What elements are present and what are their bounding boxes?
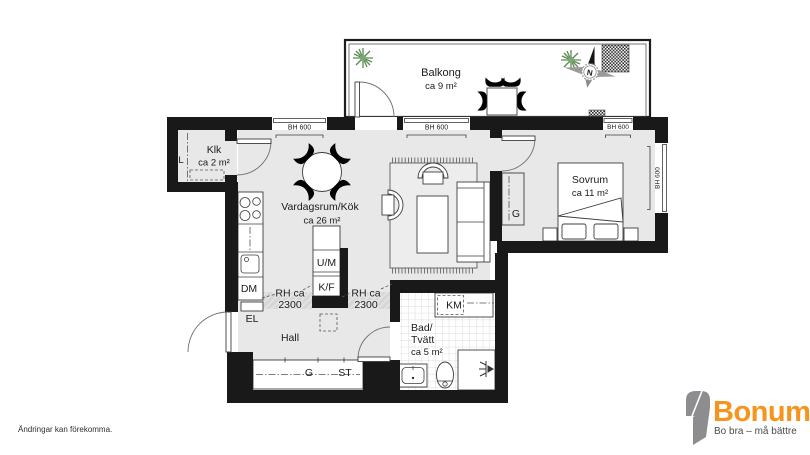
balcony-label: Balkong [421, 67, 461, 79]
balcony-drain-grate [602, 45, 629, 72]
balcony-area: ca 9 m² [425, 81, 457, 92]
washing-machine [435, 293, 493, 317]
bonum-logo-icon [686, 391, 710, 445]
floor-plan: Balkong ca 9 m² N [0, 0, 810, 455]
balcony: Balkong ca 9 m² [345, 40, 650, 117]
bedroom-wardrobe-label: G [512, 208, 520, 220]
ceiling-height-label-1b: 2300 [278, 299, 302, 311]
nightstand [624, 228, 638, 241]
dishwasher-label: DM [241, 283, 257, 295]
hall-label: Hall [281, 332, 299, 344]
window-height-label: BH 600 [655, 167, 662, 189]
ceiling-height-label-2a: RH ca [351, 288, 380, 300]
klk-area: ca 2 m² [198, 158, 230, 169]
hall-wardrobe-label: G [305, 367, 313, 379]
window: BH 600 [647, 143, 668, 213]
electrical-label: EL [246, 313, 259, 325]
entry-door [188, 312, 238, 352]
bath-label-1: Bad/ [411, 322, 433, 334]
living-room-furniture [382, 160, 490, 271]
living-kitchen-area: ca 26 m² [304, 216, 341, 227]
bath-label-2: Tvätt [411, 334, 434, 346]
toilet [437, 362, 454, 388]
window-height-label: BH 600 [425, 125, 448, 132]
bathroom-sink [399, 364, 427, 387]
ceiling-height-label-1a: RH ca [275, 288, 304, 300]
fridge-freezer-label: K/F [318, 282, 334, 294]
plant-icon [353, 48, 373, 68]
coffee-table [417, 196, 448, 253]
cleaning-closet-label: ST [338, 367, 352, 379]
bath-area: ca 5 m² [411, 347, 443, 358]
window: BH 600 [403, 117, 470, 138]
el-cabinet [241, 302, 263, 311]
logo-tagline: Bo bra – må bättre [714, 425, 797, 437]
bedroom-label: Sovrum [572, 174, 608, 186]
window-height-label: BH 600 [288, 125, 311, 132]
living-kitchen-label: Vardagsrum/Kök [281, 201, 359, 213]
window-height-label: BH 600 [607, 124, 629, 131]
pillow [562, 224, 586, 239]
oven-microwave-label: U/M [317, 257, 336, 269]
nightstand [543, 228, 557, 241]
balcony-drain-strip [589, 110, 605, 116]
window: BH 600 [603, 117, 633, 138]
floor-plan-page: Balkong ca 9 m² N [0, 0, 810, 455]
disclaimer-text: Ändringar kan förekomma. [18, 425, 112, 434]
plant-icon [561, 50, 581, 70]
linen-closet-label: L [178, 155, 183, 166]
bonum-logo: Bonum Bo bra – må bättre [686, 391, 810, 445]
logo-wordmark: Bonum [713, 396, 810, 428]
ceiling-height-label-2b: 2300 [354, 299, 378, 311]
sofa [457, 182, 490, 262]
klk-label: Klk [207, 144, 222, 156]
pillow [594, 224, 618, 239]
window: BH 600 [272, 117, 327, 138]
washing-machine-label: KM [446, 300, 462, 312]
bedroom-area: ca 11 m² [572, 188, 608, 199]
